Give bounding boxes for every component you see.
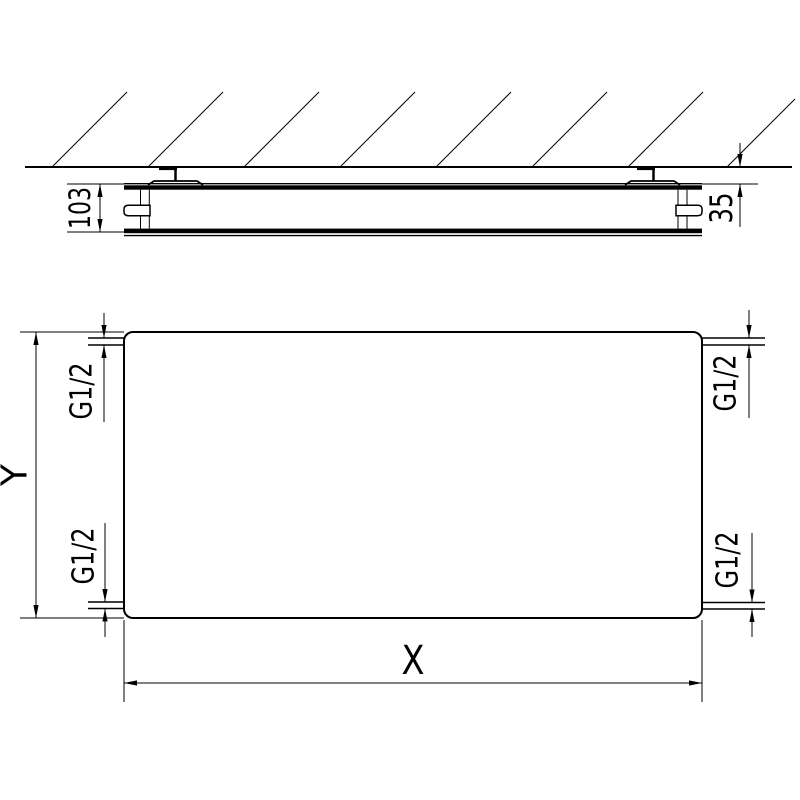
wall-clearance-dim-label: 35 [704, 193, 740, 224]
thread-size-label: G1/2 [709, 355, 744, 412]
radiator-panel-front [124, 332, 702, 618]
width-dim-label: X [402, 638, 425, 684]
thread-size-label: G1/2 [711, 532, 746, 589]
height-dim-label: Y [0, 463, 36, 487]
radiator-dimension-drawing: 103 35 Y [0, 0, 800, 800]
technical-drawing-page: 103 35 Y [0, 0, 800, 800]
connection-stub-right-section [676, 205, 702, 215]
connection-stub-left-section [124, 205, 150, 215]
depth-dim-label: 103 [63, 187, 97, 229]
panel-back-plate [124, 185, 702, 189]
thread-size-label: G1/2 [67, 528, 102, 585]
thread-size-label: G1/2 [65, 363, 100, 420]
panel-front-plate [124, 229, 702, 234]
